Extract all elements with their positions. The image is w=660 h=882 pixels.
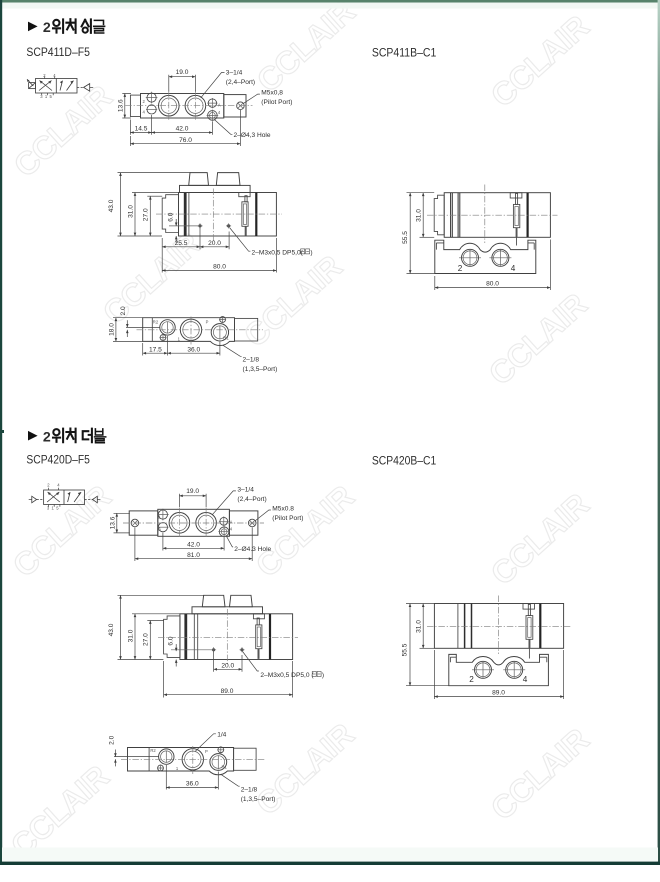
svg-text:19.0: 19.0 bbox=[186, 488, 199, 495]
svg-text:25.5: 25.5 bbox=[175, 240, 188, 247]
svg-text:27.0: 27.0 bbox=[143, 633, 150, 646]
svg-text:27.0: 27.0 bbox=[143, 208, 150, 221]
svg-text:4: 4 bbox=[53, 73, 56, 78]
svg-text:4: 4 bbox=[218, 110, 221, 115]
svg-text:18.0: 18.0 bbox=[108, 323, 115, 336]
svg-text:43.0: 43.0 bbox=[108, 623, 115, 636]
svg-text:80.0: 80.0 bbox=[486, 281, 499, 288]
svg-text:1: 1 bbox=[176, 766, 179, 771]
svg-text:42.0: 42.0 bbox=[176, 126, 189, 133]
svg-text:2–Ø4.3 Hole: 2–Ø4.3 Hole bbox=[234, 546, 271, 553]
svg-text:20.0: 20.0 bbox=[208, 240, 221, 247]
svg-text:(2,4–Port): (2,4–Port) bbox=[237, 496, 266, 503]
svg-text:(Pilot Port): (Pilot Port) bbox=[272, 515, 303, 522]
svg-text:3–1/4: 3–1/4 bbox=[226, 70, 243, 77]
svg-text:13.6: 13.6 bbox=[118, 99, 125, 112]
svg-text:R2: R2 bbox=[150, 748, 156, 753]
svg-text:3–1/4: 3–1/4 bbox=[237, 487, 254, 494]
svg-text:4: 4 bbox=[523, 675, 528, 684]
svg-text:4: 4 bbox=[143, 110, 146, 115]
svg-text:SCP411B–C1: SCP411B–C1 bbox=[372, 46, 436, 60]
svg-text:2: 2 bbox=[458, 264, 463, 273]
svg-text:P: P bbox=[205, 749, 208, 754]
svg-text:2.0: 2.0 bbox=[109, 735, 116, 744]
svg-text:4: 4 bbox=[230, 527, 233, 532]
svg-text:A: A bbox=[230, 519, 233, 524]
svg-text:55.5: 55.5 bbox=[402, 643, 409, 656]
svg-text:(Pilot Port): (Pilot Port) bbox=[261, 99, 292, 106]
svg-text:43.0: 43.0 bbox=[108, 199, 115, 212]
svg-text:81.0: 81.0 bbox=[187, 552, 200, 559]
svg-text:2: 2 bbox=[47, 483, 50, 488]
svg-text:6.0: 6.0 bbox=[167, 212, 174, 221]
svg-text:2–M3x0,5 DP5,0 (: 2–M3x0,5 DP5,0 ( bbox=[260, 672, 314, 679]
svg-text:17.5: 17.5 bbox=[149, 346, 162, 353]
svg-text:SCP411D–F5: SCP411D–F5 bbox=[26, 45, 90, 59]
svg-text:20.0: 20.0 bbox=[221, 662, 234, 669]
svg-text:M5x0,8: M5x0,8 bbox=[261, 90, 283, 97]
svg-text:): ) bbox=[322, 672, 324, 679]
svg-text:2: 2 bbox=[43, 20, 51, 36]
svg-text:31.0: 31.0 bbox=[128, 205, 135, 218]
svg-text:A: A bbox=[218, 102, 221, 107]
svg-text:76.0: 76.0 bbox=[179, 137, 192, 144]
svg-text:R1: R1 bbox=[222, 765, 228, 770]
svg-text:13.6: 13.6 bbox=[110, 516, 117, 529]
svg-text:R2: R2 bbox=[153, 319, 159, 324]
svg-text:2–1/8: 2–1/8 bbox=[243, 357, 260, 364]
svg-text:31.0: 31.0 bbox=[415, 620, 422, 633]
svg-text:4: 4 bbox=[57, 483, 60, 488]
svg-text:B: B bbox=[158, 526, 161, 531]
svg-text:89.0: 89.0 bbox=[492, 690, 505, 697]
svg-text:89.0: 89.0 bbox=[221, 688, 234, 695]
svg-text:2.0: 2.0 bbox=[120, 306, 127, 315]
svg-text:2–Ø4,3 Hole: 2–Ø4,3 Hole bbox=[234, 132, 271, 139]
svg-text:42.0: 42.0 bbox=[187, 541, 200, 548]
svg-text:6.0: 6.0 bbox=[167, 636, 174, 645]
svg-text:2: 2 bbox=[43, 73, 46, 78]
svg-text:19.0: 19.0 bbox=[176, 69, 189, 76]
svg-text:31.0: 31.0 bbox=[415, 209, 422, 222]
svg-text:2: 2 bbox=[143, 99, 146, 104]
svg-text:M5x0.8: M5x0.8 bbox=[272, 506, 294, 513]
svg-text:2–M3x0,5 DP5,0(: 2–M3x0,5 DP5,0( bbox=[252, 249, 304, 256]
svg-text:2: 2 bbox=[469, 675, 474, 684]
svg-text:SCP420D–F5: SCP420D–F5 bbox=[26, 452, 90, 466]
svg-text:14.5: 14.5 bbox=[135, 126, 148, 133]
svg-text:3 1 5: 3 1 5 bbox=[40, 94, 52, 99]
svg-text:36.0: 36.0 bbox=[186, 781, 199, 788]
svg-text:(1,3,5–Port): (1,3,5–Port) bbox=[241, 796, 276, 803]
svg-text:80.0: 80.0 bbox=[213, 264, 226, 271]
svg-text:2: 2 bbox=[43, 430, 51, 446]
svg-text:2–1/8: 2–1/8 bbox=[241, 786, 258, 793]
svg-text:31.0: 31.0 bbox=[128, 629, 135, 642]
svg-text:R1: R1 bbox=[223, 336, 229, 341]
svg-text:(1,3,5–Port): (1,3,5–Port) bbox=[243, 366, 278, 373]
svg-text:1/4: 1/4 bbox=[217, 731, 226, 738]
svg-text:55.5: 55.5 bbox=[402, 231, 409, 244]
svg-text:1: 1 bbox=[178, 337, 181, 342]
svg-text:36.0: 36.0 bbox=[187, 346, 200, 353]
svg-text:): ) bbox=[310, 249, 312, 256]
svg-text:3 1 5: 3 1 5 bbox=[47, 505, 59, 510]
svg-text:4: 4 bbox=[511, 264, 516, 273]
svg-text:P: P bbox=[206, 320, 209, 325]
svg-text:(2,4–Port): (2,4–Port) bbox=[226, 79, 255, 86]
svg-text:SCP420B–C1: SCP420B–C1 bbox=[372, 454, 436, 468]
